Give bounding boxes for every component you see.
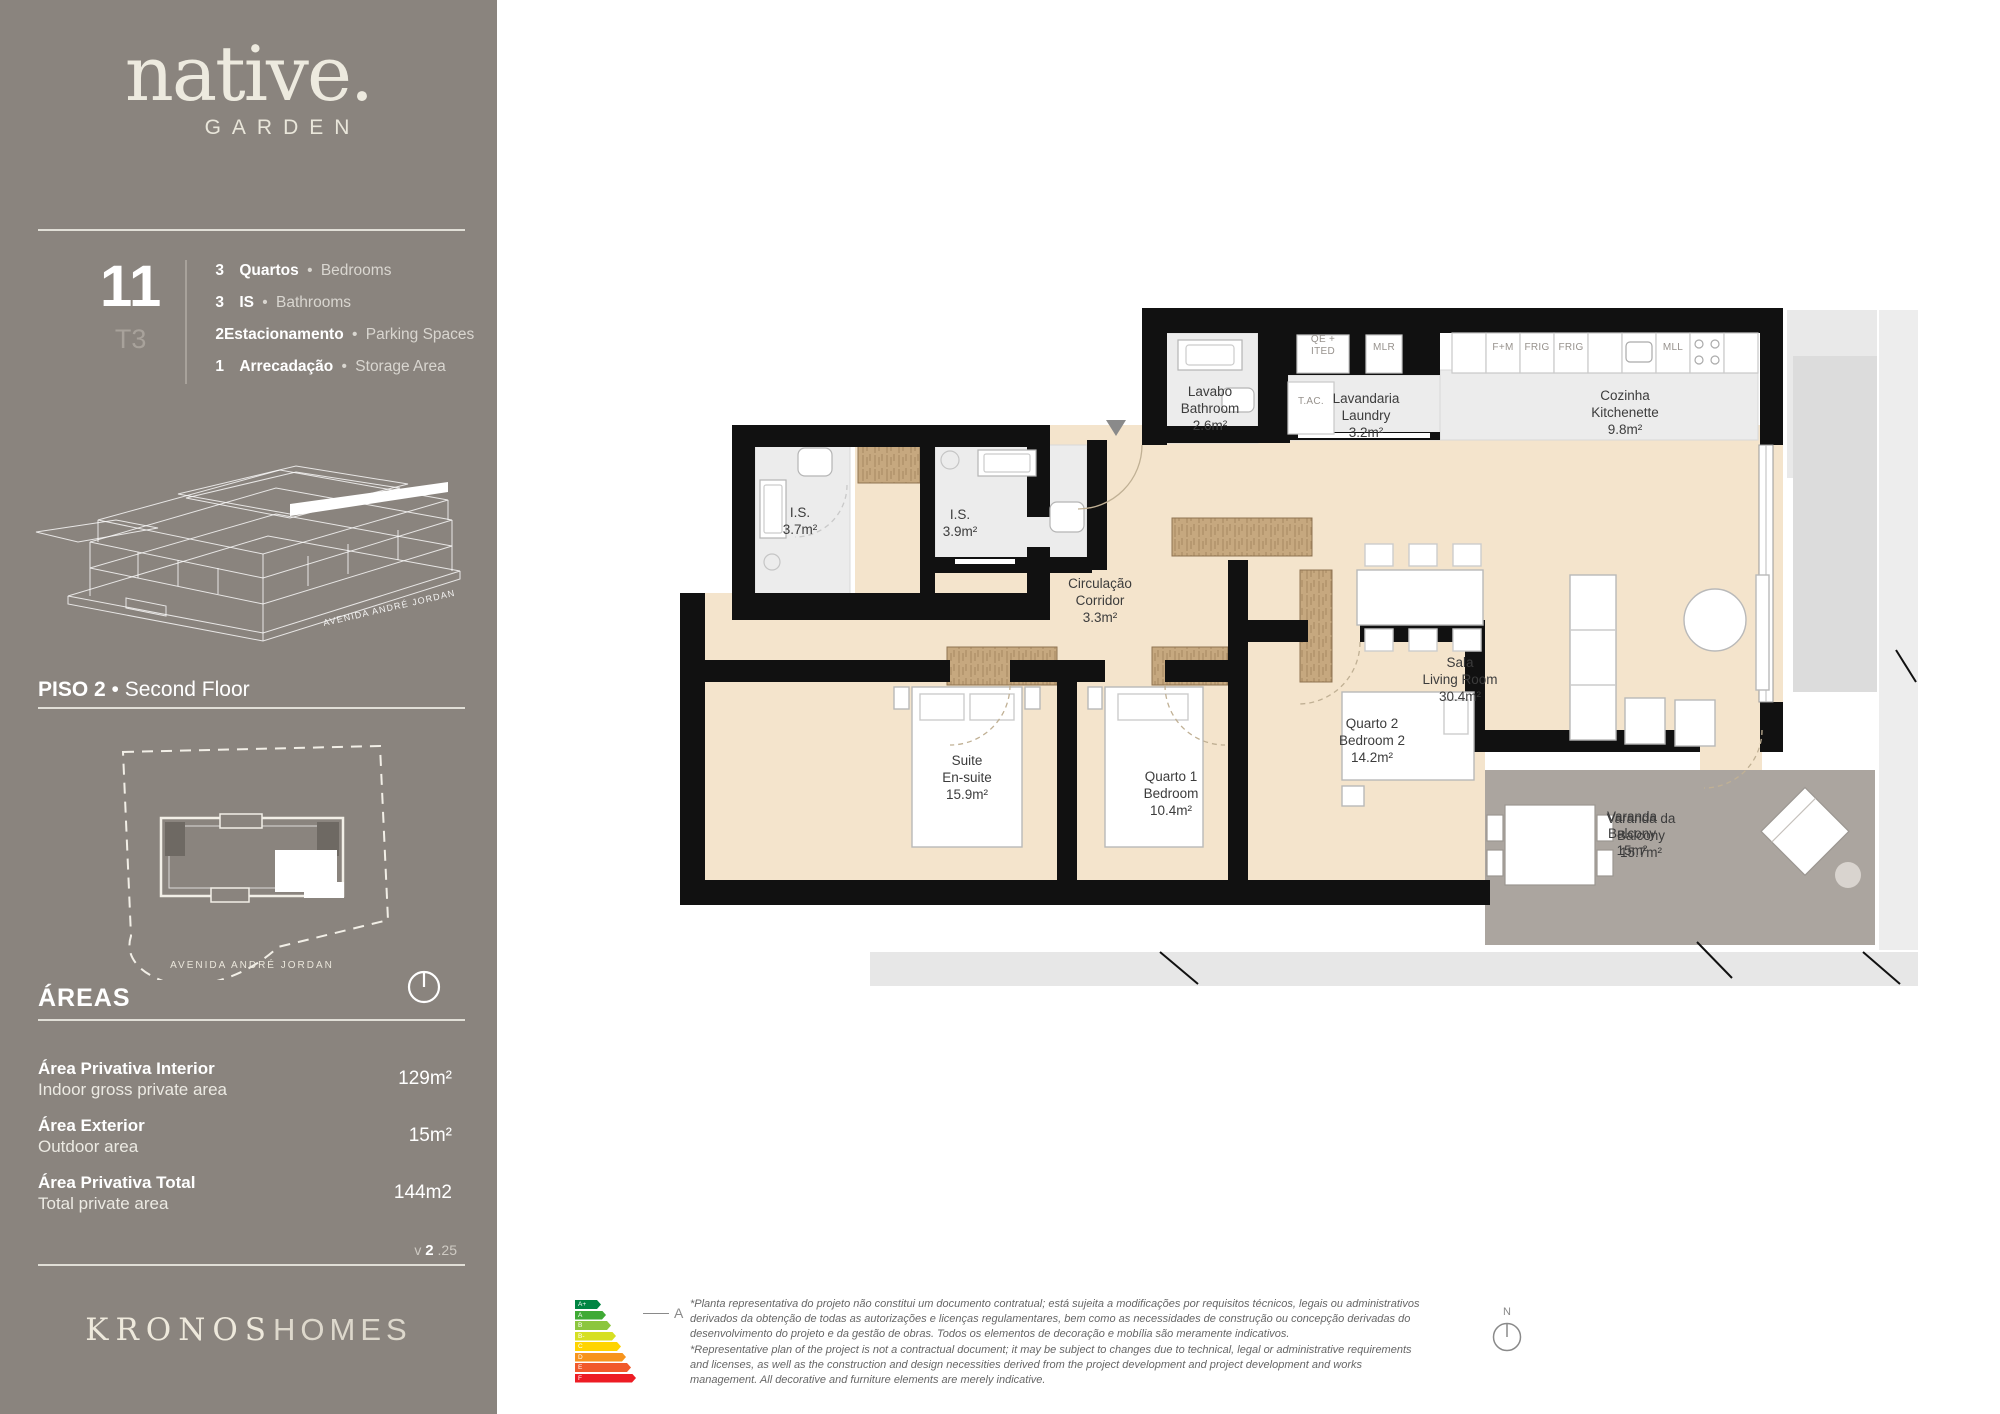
spec-count: 3 [215,262,239,280]
areas-title: ÁREAS [38,984,131,1013]
building-footprint [161,814,344,902]
armchair-icon [1675,700,1715,746]
area-row: Área ExteriorOutdoor area15m² [38,1115,458,1157]
north-arrow-icon [1490,1320,1524,1354]
energy-bar: A [575,1311,606,1320]
floor-pt: PISO 2 [38,678,106,701]
dining-table-icon [1357,544,1483,651]
energy-bar: A+ [575,1300,601,1309]
street-label: AVENIDA ANDRÉ JORDAN [170,958,334,971]
divider [38,1019,465,1021]
disclaimer-en: *Representative plan of the project is n… [690,1343,1425,1389]
area-row: Área Privativa InteriorIndoor gross priv… [38,1058,458,1100]
spec-label-pt: Quartos [239,262,298,279]
area-label-en: Outdoor area [38,1136,458,1157]
spec-label-pt: IS [239,294,254,311]
version-prefix: v [414,1242,421,1258]
unit-specs-list: 3Quartos • Bedrooms3IS • Bathrooms2Estac… [215,262,474,390]
divider [38,707,465,709]
energy-bar: B [575,1321,611,1330]
developer-logo-sans: HOMES [273,1312,412,1347]
spec-count: 2 [215,326,224,344]
brand-subtitle: GARDEN [34,116,531,140]
brochure-page: native. GARDEN 11 T3 3Quartos • Bedrooms… [0,0,2000,1414]
compass-icon [404,964,444,1006]
spec-count: 1 [215,358,239,376]
spec-row: 2Estacionamento • Parking Spaces [215,326,474,344]
brand-name: native. [0,36,497,112]
unit-id: 11 T3 [100,258,161,390]
area-label-pt: Área Privativa Interior [38,1058,458,1079]
spec-row: 1Arrecadação • Storage Area [215,358,474,376]
separator: • [333,358,355,375]
areas-table: Área Privativa InteriorIndoor gross priv… [38,1058,458,1229]
floor-plan [560,230,1920,1000]
spec-label-pt: Arrecadação [239,358,333,375]
bed-suite-icon [894,687,1040,847]
spec-label-en: Bathrooms [276,294,351,311]
disclaimer-pt: *Planta representativa do projeto não co… [690,1297,1425,1343]
tv-console-icon [1756,575,1769,690]
bed-bedroom1-icon [1088,687,1203,847]
energy-bar: C [575,1342,621,1351]
separator: • [299,262,321,279]
area-row: Área Privativa TotalTotal private area14… [38,1172,458,1214]
outdoor-table-icon [1505,805,1595,885]
site-plan: AVENIDA ANDRÉ JORDAN [28,740,468,980]
area-value: 144m2 [394,1182,452,1204]
sofa-icon [1570,575,1616,740]
separator: • [254,294,276,311]
area-label-pt: Área Exterior [38,1115,458,1136]
energy-bar: B- [575,1332,616,1341]
separator: • [344,326,366,343]
energy-bar: D [575,1353,626,1362]
brand-logo: native. GARDEN [0,36,497,140]
version-suffix: .25 [438,1242,457,1258]
site-boundary [123,746,388,980]
spec-count: 3 [215,294,239,312]
unit-number: 11 [100,258,161,316]
area-label-en: Indoor gross private area [38,1079,458,1100]
separator: • [112,678,119,701]
energy-bar: F [575,1374,636,1383]
armchair-icon [1625,698,1665,744]
energy-rating-value: A [674,1305,683,1321]
unit-block: 11 T3 3Quartos • Bedrooms3IS • Bathrooms… [100,258,474,390]
developer-logo: KRONOSHOMES [0,1312,497,1348]
divider [185,260,187,384]
spec-label-en: Parking Spaces [366,326,475,343]
floor-heading: PISO 2 • Second Floor [38,678,250,702]
developer-logo-serif: KRONOS [85,1312,273,1348]
spec-row: 3IS • Bathrooms [215,294,474,312]
coffee-table-icon [1684,589,1746,651]
energy-rating-pointer [643,1313,669,1314]
version-number: 2 [425,1242,433,1259]
floor-en: Second Floor [125,678,250,701]
energy-bar: E [575,1363,631,1372]
north-indicator: N [1489,1306,1525,1359]
spec-label-en: Bedrooms [321,262,392,279]
building-isometric-illustration: AVENIDA ANDRÉ JORDAN [28,428,468,643]
spec-label-pt: Estacionamento [224,326,344,343]
spec-row: 3Quartos • Bedrooms [215,262,474,280]
area-value: 129m² [398,1068,452,1090]
spec-label-en: Storage Area [355,358,445,375]
area-value: 15m² [409,1125,452,1147]
highlighted-unit [290,482,448,516]
north-label: N [1489,1306,1525,1318]
disclaimer-text: *Planta representativa do projeto não co… [690,1297,1425,1388]
sidebar: native. GARDEN 11 T3 3Quartos • Bedrooms… [0,0,497,1414]
version-label: v 2 .25 [414,1242,457,1259]
divider [38,229,465,231]
unit-type: T3 [100,324,161,355]
divider [38,1264,465,1266]
